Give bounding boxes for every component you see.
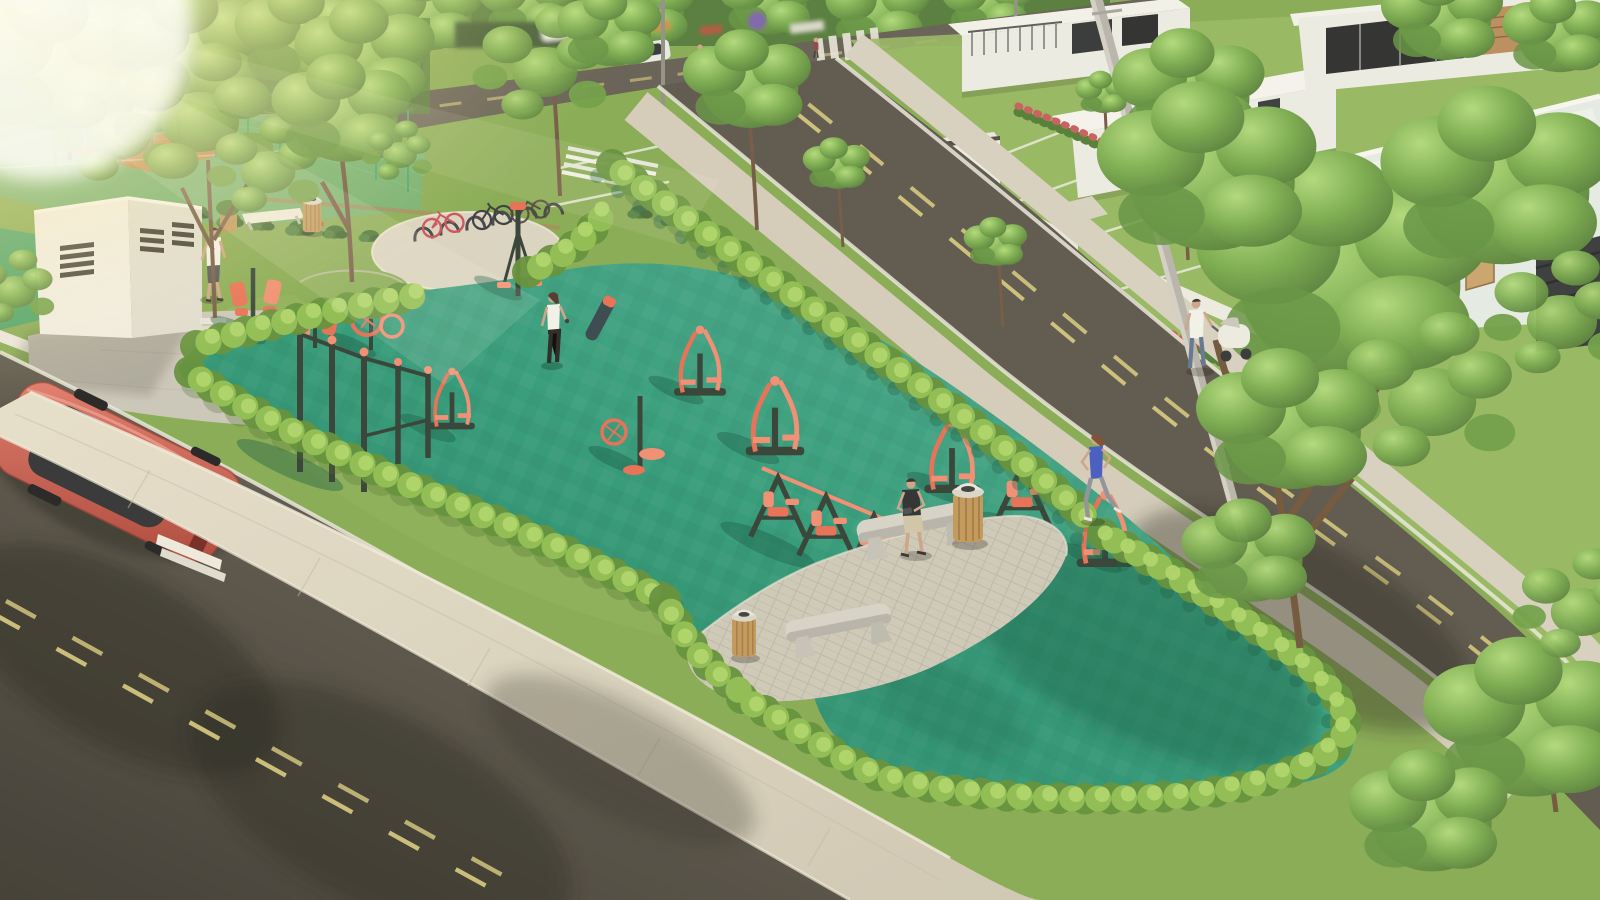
render-stage: Aerial 3D render — condominium linear pa… [0, 0, 1600, 900]
litter-bin-2 [731, 610, 760, 664]
gatehouse-building [34, 198, 230, 338]
kiosk-umbrella [748, 12, 766, 30]
louver-vent-right-2 [172, 222, 194, 247]
backyard-tree-2 [1502, 0, 1600, 72]
aerial-park-render [0, 0, 1600, 900]
litter-bin-1 [952, 483, 988, 550]
louver-vent-right-1 [140, 228, 164, 253]
backyard-tree-1 [1381, 0, 1503, 60]
